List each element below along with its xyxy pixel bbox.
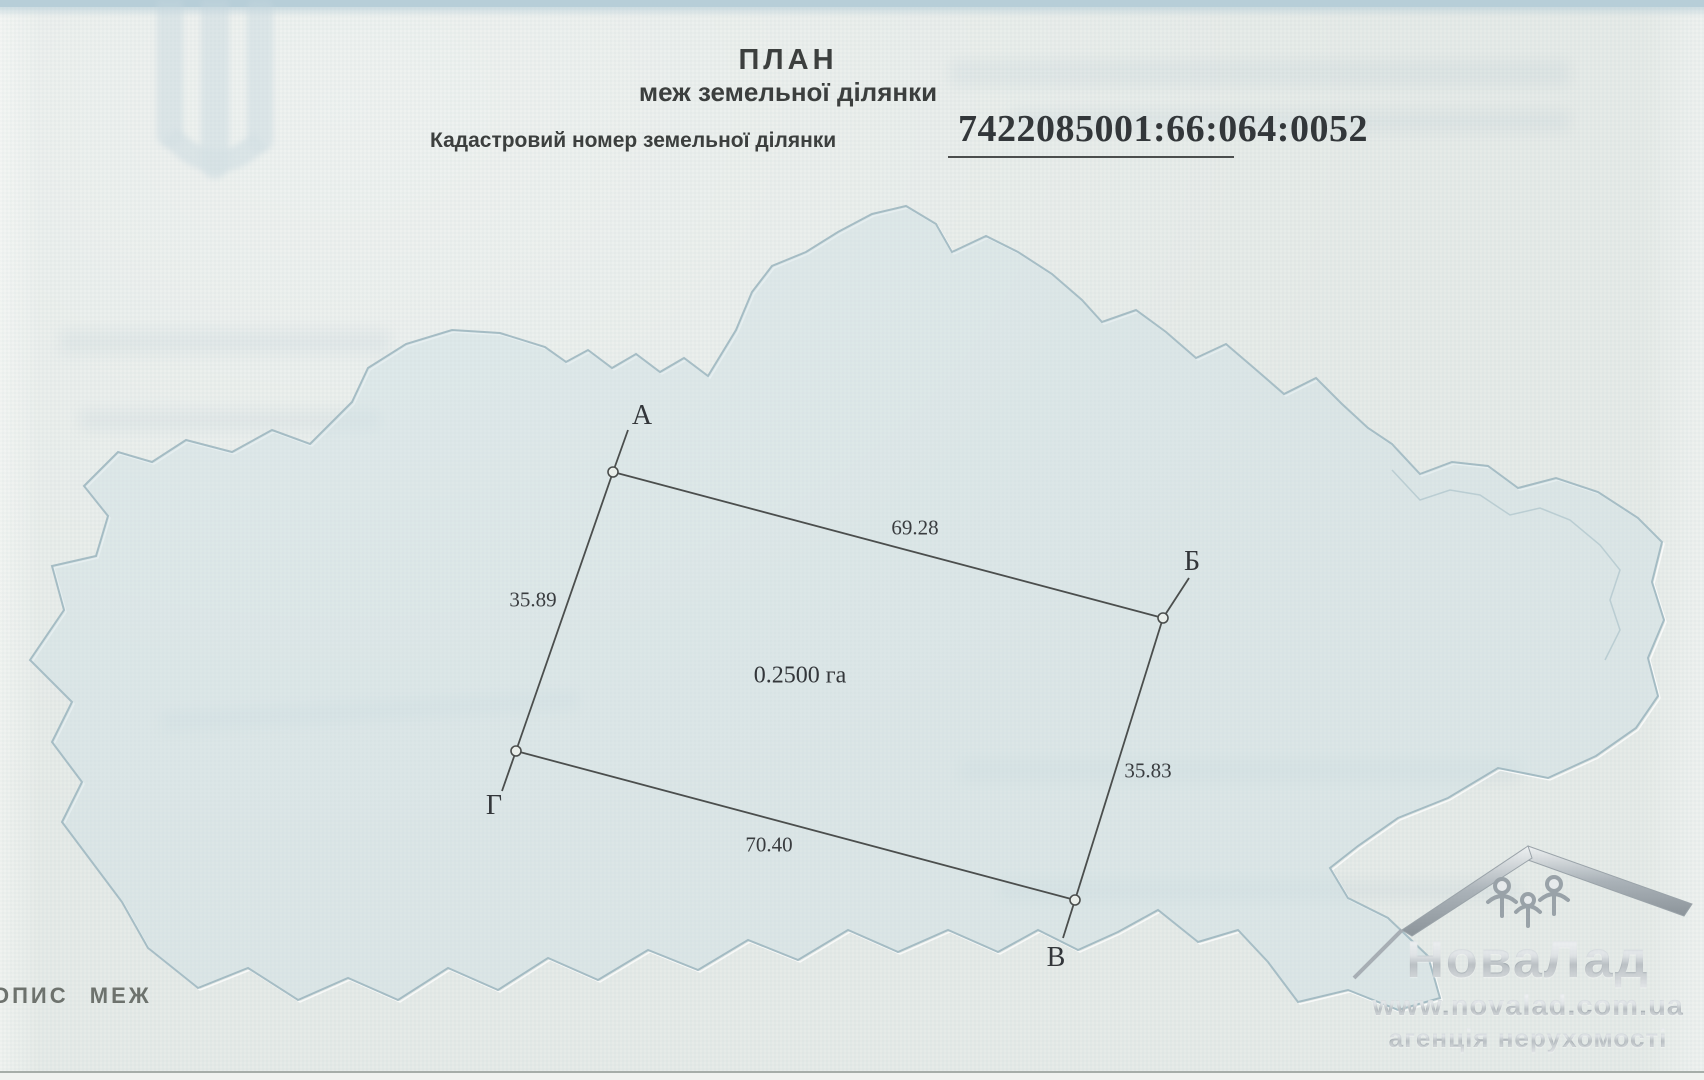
agency-tagline: агенція нерухомості [1389,1023,1668,1054]
vertex-marker-v [1070,895,1080,905]
boundary-line-a-b [613,472,1163,618]
vertex-marker-b [1158,613,1168,623]
side-length-v-g: 70.40 [745,833,792,858]
tick-beyond-g [502,751,516,791]
vertex-marker-a [608,467,618,477]
side-length-b-v: 35.83 [1124,759,1171,784]
vertex-label-v: В [1047,942,1066,974]
boundary-line-v-g [516,751,1075,900]
agency-watermark: НоваЛад www.novalad.com.ua агенція нерух… [1340,838,1704,1080]
side-length-g-a: 35.89 [509,588,556,613]
vertex-label-b: Б [1184,546,1200,578]
scan-bottom-edge [0,1071,1704,1080]
vertex-label-g: Г [486,790,502,822]
tick-beyond-a [613,430,628,472]
description-of-boundaries-heading: ОПИС МЕЖ [0,983,152,1009]
side-length-a-b: 69.28 [891,516,938,541]
tick-beyond-b [1163,578,1189,618]
agency-website: www.novalad.com.ua [1372,990,1684,1023]
plot-area-label: 0.2500 га [754,663,847,690]
agency-brand-name: НоваЛад [1406,930,1649,990]
tick-beyond-v [1063,900,1075,938]
scanned-land-plan-page: ПЛАН меж земельної ділянки Кадастровий н… [0,0,1704,1080]
vertex-marker-g [511,746,521,756]
vertex-label-a: А [632,400,652,432]
